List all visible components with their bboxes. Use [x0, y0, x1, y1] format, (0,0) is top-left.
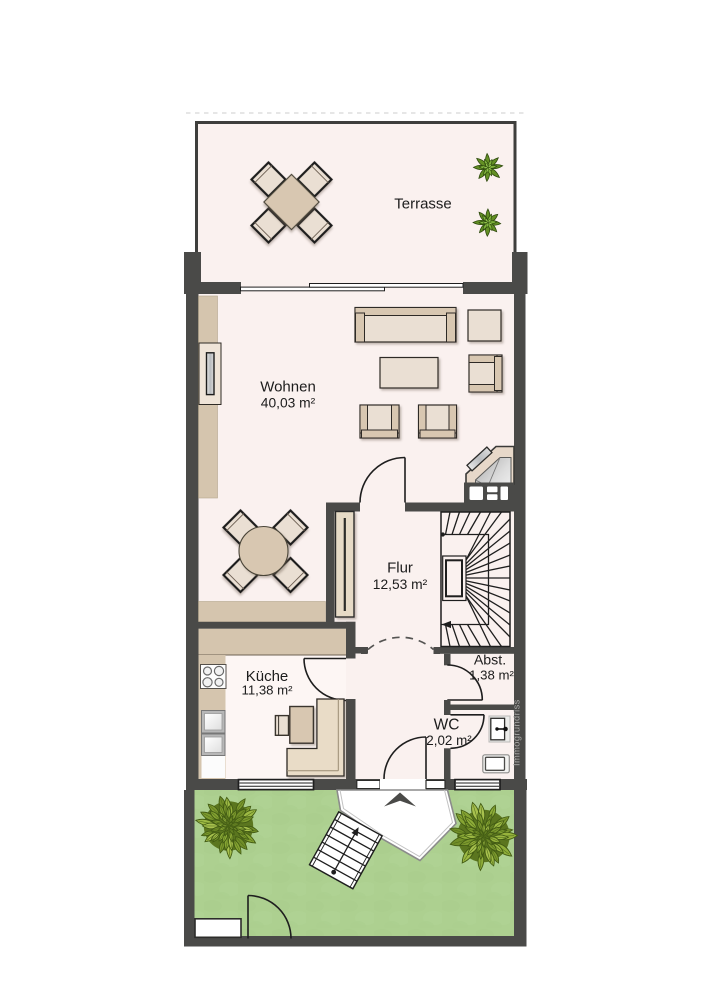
- svg-text:12,53 m²: 12,53 m²: [373, 577, 428, 592]
- svg-text:40,03 m²: 40,03 m²: [261, 396, 316, 411]
- svg-text:WC: WC: [434, 717, 460, 734]
- svg-text:Terrasse: Terrasse: [394, 196, 452, 213]
- svg-text:11,38 m²: 11,38 m²: [241, 683, 293, 698]
- svg-text:Abst.: Abst.: [474, 653, 506, 669]
- svg-text:1,38 m²: 1,38 m²: [469, 667, 514, 682]
- svg-text:Wohnen: Wohnen: [260, 379, 316, 396]
- svg-text:Flur: Flur: [387, 560, 413, 577]
- svg-text:Immogrundriss: Immogrundriss: [512, 699, 522, 766]
- svg-text:2,02 m²: 2,02 m²: [426, 733, 472, 748]
